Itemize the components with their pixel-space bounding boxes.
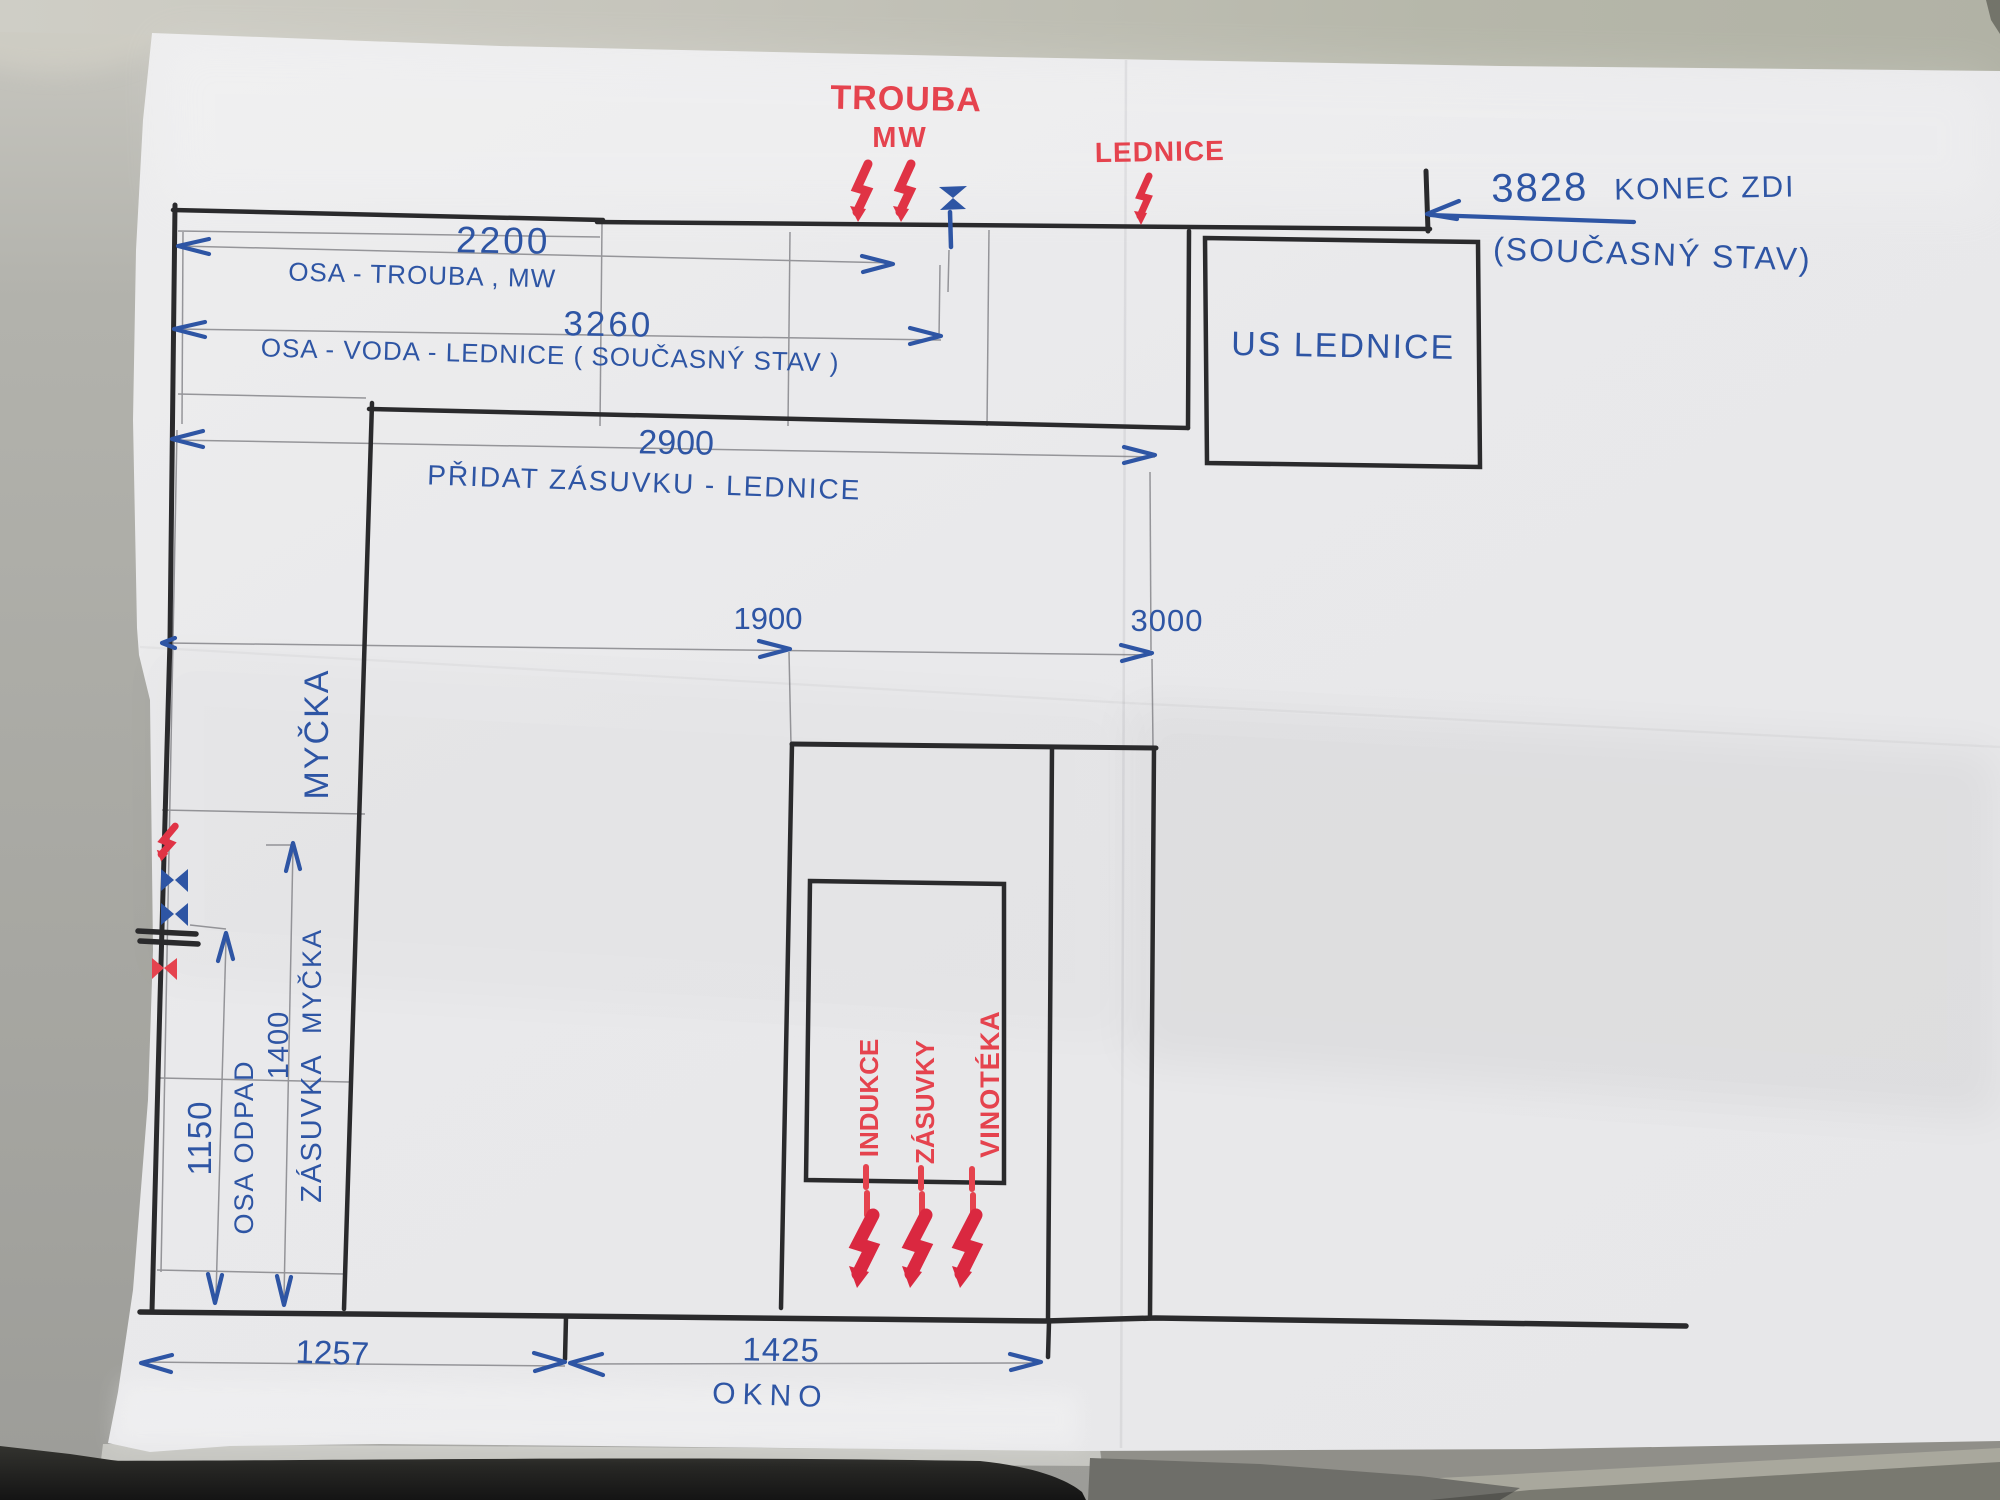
svg-text:3260: 3260 <box>563 304 654 345</box>
svg-text:OSA ODPAD: OSA ODPAD <box>229 1059 259 1234</box>
svg-text:2900: 2900 <box>638 423 714 462</box>
svg-text:ZÁSUVKA: ZÁSUVKA <box>295 1053 328 1202</box>
svg-text:OKNO: OKNO <box>712 1377 829 1414</box>
svg-text:US LEDNICE: US LEDNICE <box>1231 325 1456 367</box>
svg-text:1900: 1900 <box>734 601 803 636</box>
svg-text:TROUBA: TROUBA <box>830 79 982 120</box>
svg-text:MW: MW <box>872 122 928 154</box>
svg-text:VINOTÉKA: VINOTÉKA <box>974 1010 1005 1158</box>
svg-text:3000: 3000 <box>1131 603 1204 638</box>
svg-text:2200: 2200 <box>456 219 551 262</box>
svg-text:ZÁSUVKY: ZÁSUVKY <box>910 1040 940 1164</box>
svg-text:MYČKA: MYČKA <box>298 669 336 800</box>
svg-text:LEDNICE: LEDNICE <box>1095 135 1225 168</box>
svg-text:MYČKA: MYČKA <box>296 928 327 1034</box>
svg-text:KONEC ZDI: KONEC ZDI <box>1614 170 1796 206</box>
svg-text:3828: 3828 <box>1491 165 1589 211</box>
svg-text:1150: 1150 <box>181 1101 218 1176</box>
svg-text:1257: 1257 <box>295 1333 370 1373</box>
svg-text:INDUKCE: INDUKCE <box>854 1039 884 1157</box>
svg-text:1400: 1400 <box>263 1011 295 1080</box>
svg-text:1425: 1425 <box>742 1330 820 1368</box>
